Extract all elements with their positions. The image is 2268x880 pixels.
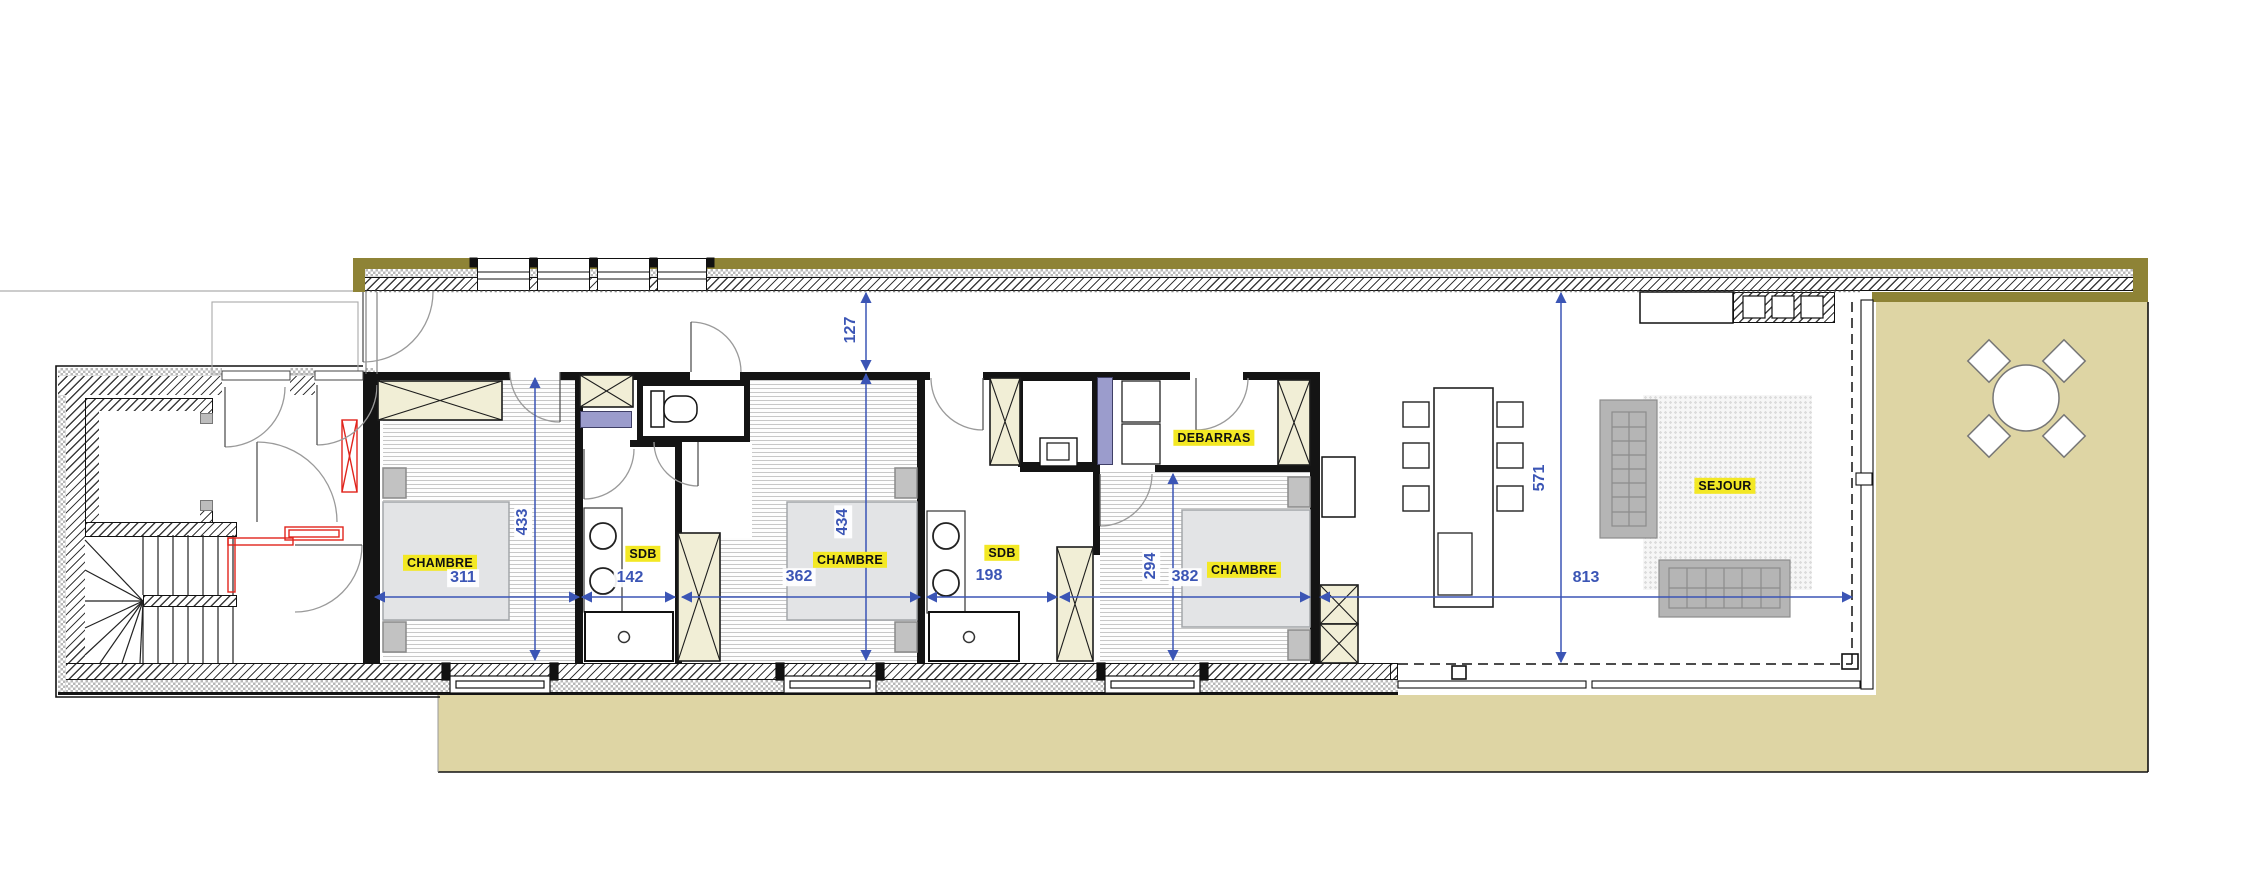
room-label-debarras: DEBARRAS	[1173, 430, 1254, 446]
dim-198: 198	[973, 567, 1006, 585]
dim-142: 142	[614, 569, 647, 587]
dim-127: 127	[842, 314, 860, 347]
dim-433: 433	[514, 506, 532, 539]
linework-overlay	[0, 0, 2268, 880]
room-label-chambre-3: CHAMBRE	[1207, 562, 1281, 578]
entry-door-frames	[222, 371, 363, 380]
dim-294: 294	[1142, 550, 1160, 583]
room-label-chambre-2: CHAMBRE	[813, 552, 887, 568]
sofas	[1600, 400, 1790, 617]
dim-362: 362	[783, 568, 816, 586]
top-window-frames	[470, 258, 714, 279]
red-markup	[228, 420, 357, 592]
floor-plan-canvas: CHAMBRE SDB CHAMBRE SDB CHAMBRE DEBARRAS…	[0, 0, 2268, 880]
door-arcs	[225, 292, 1248, 612]
room-label-sdb-1: SDB	[625, 546, 660, 562]
room-label-sejour: SEJOUR	[1694, 478, 1755, 494]
terrace-table-set	[1968, 340, 2085, 457]
entry-porch	[212, 292, 377, 374]
dim-434: 434	[834, 506, 852, 539]
dim-382: 382	[1169, 568, 1202, 586]
room-label-sdb-2: SDB	[984, 545, 1019, 561]
dim-311: 311	[447, 569, 479, 587]
bottom-windows	[442, 663, 1208, 693]
stair-lines	[85, 535, 233, 663]
dim-571: 571	[1531, 462, 1549, 495]
dining-set	[1403, 388, 1523, 607]
dim-813: 813	[1570, 569, 1603, 587]
debarras-shelves	[1122, 381, 1160, 464]
